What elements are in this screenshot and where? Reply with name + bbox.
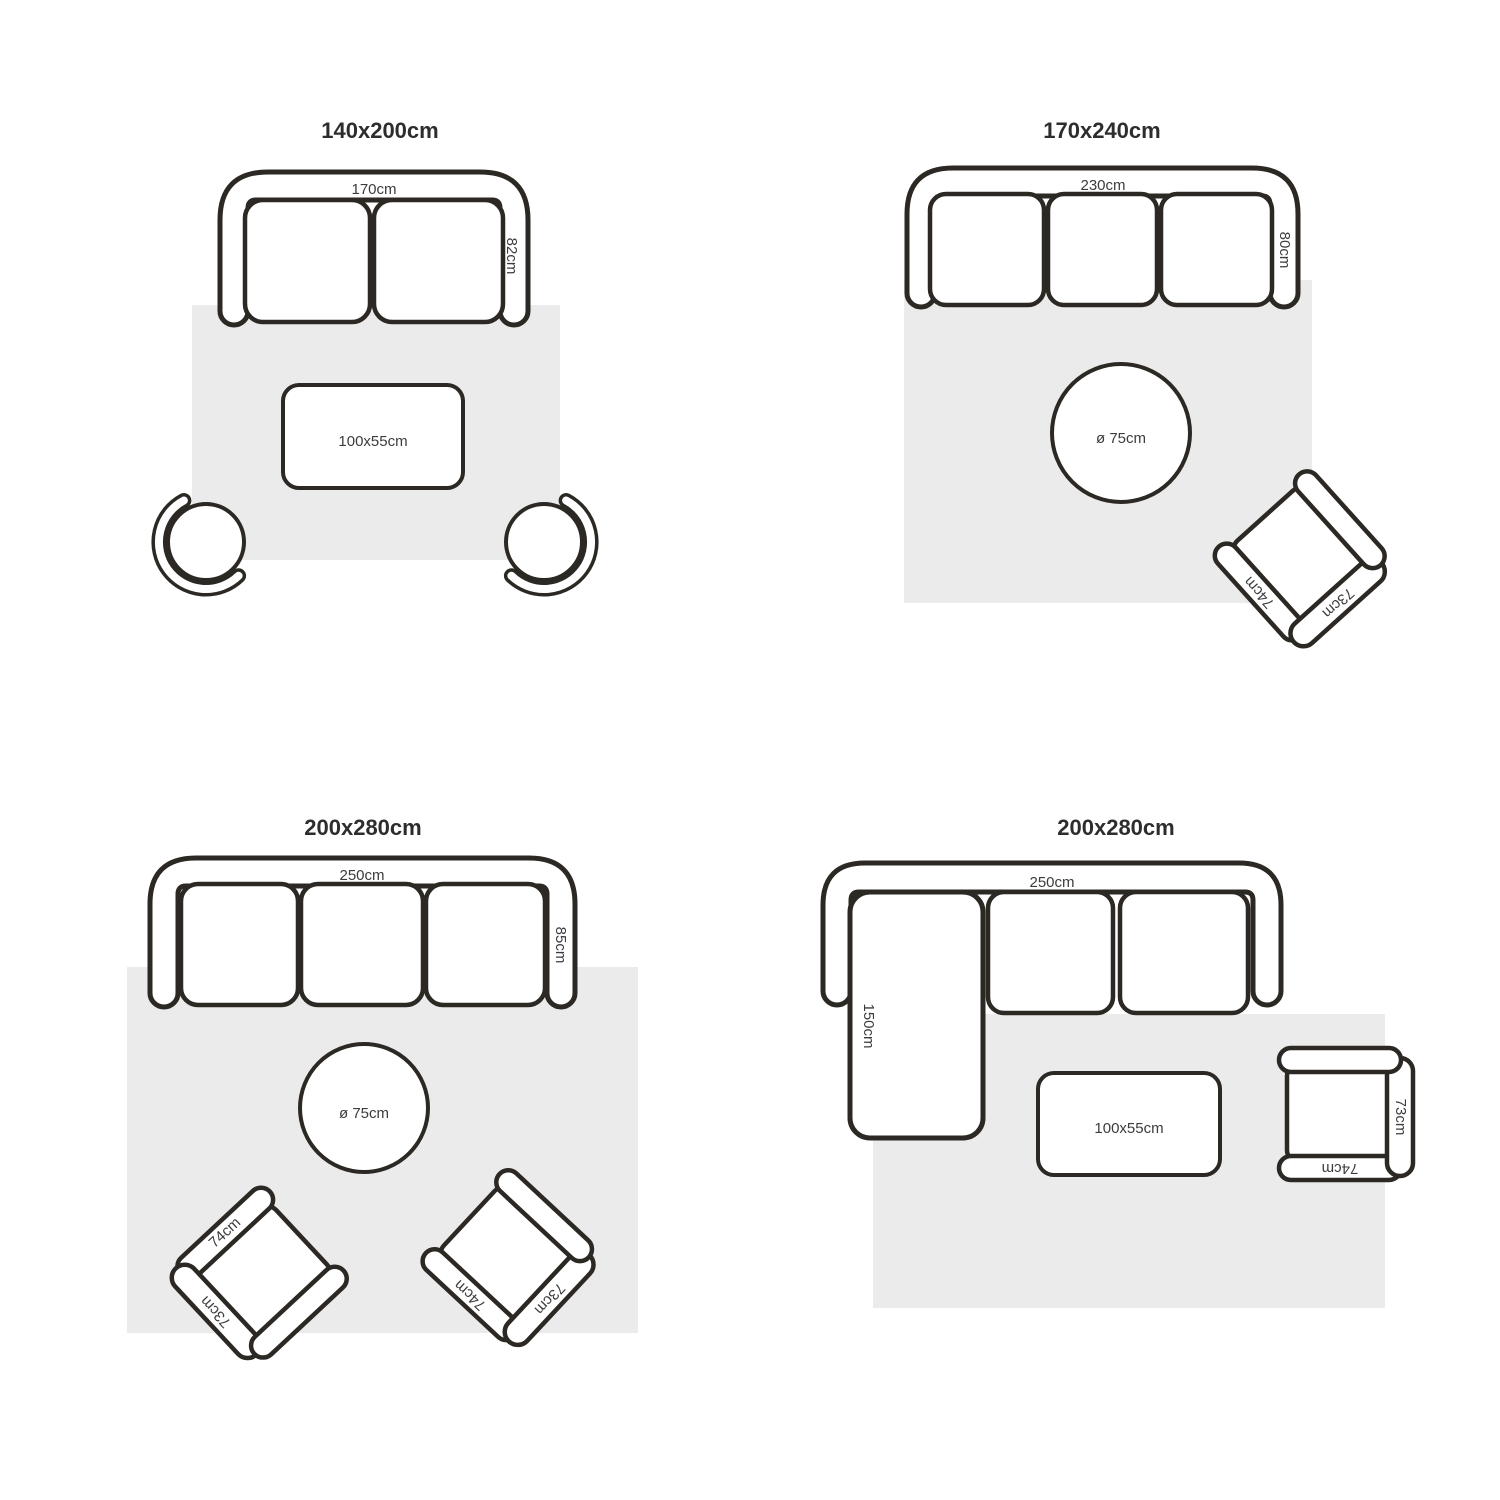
swivel-chair-seat bbox=[506, 504, 582, 580]
panel-title: 200x280cm bbox=[1057, 815, 1174, 840]
rug-size-guide-diagram: 73cm 74cm 140x200cm 170cm 82cm 100x55cm … bbox=[0, 0, 1500, 1500]
sofa-cushion bbox=[374, 200, 503, 322]
coffee-table-label: 100x55cm bbox=[338, 433, 407, 450]
round-table-label: ø 75cm bbox=[339, 1105, 389, 1122]
panel-170x240: 170x240cm 230cm 80cm ø 75cm bbox=[904, 118, 1398, 654]
swivel-chair-right bbox=[506, 501, 591, 590]
sofa-cushion bbox=[426, 884, 545, 1005]
sofa-depth-label: 80cm bbox=[1276, 232, 1293, 269]
armchair bbox=[1279, 1048, 1413, 1180]
sofa-width-label: 170cm bbox=[351, 181, 396, 198]
round-table-label: ø 75cm bbox=[1096, 430, 1146, 447]
sofa-depth-label: 85cm bbox=[552, 927, 569, 964]
swivel-chair-left bbox=[159, 501, 244, 590]
sofa-cushion bbox=[245, 200, 370, 322]
sofa-cushion bbox=[181, 884, 298, 1005]
sofa-cushion bbox=[301, 884, 423, 1005]
sofa-width-label: 250cm bbox=[1029, 874, 1074, 891]
swivel-chair-seat bbox=[168, 504, 244, 580]
chaise-length-label: 150cm bbox=[860, 1003, 877, 1048]
coffee-table-label: 100x55cm bbox=[1094, 1120, 1163, 1137]
panel-title: 200x280cm bbox=[304, 815, 421, 840]
panel-200x280-b: 200x280cm 250cm 150cm 100x55cm bbox=[823, 815, 1413, 1308]
sofa-cushion bbox=[1120, 892, 1248, 1013]
sofa-cushion bbox=[930, 194, 1044, 305]
sofa-width-label: 250cm bbox=[339, 867, 384, 884]
panel-140x200: 140x200cm 170cm 82cm 100x55cm bbox=[159, 118, 591, 589]
panel-200x280-a: 200x280cm 250cm 85cm ø 75cm bbox=[127, 815, 638, 1371]
sofa-cushion bbox=[988, 892, 1113, 1013]
sofa-width-label: 230cm bbox=[1080, 177, 1125, 194]
sofa-cushion bbox=[1048, 194, 1157, 305]
panel-title: 170x240cm bbox=[1043, 118, 1160, 143]
sofa-cushion bbox=[1161, 194, 1272, 305]
sofa-depth-label: 82cm bbox=[503, 238, 520, 275]
panel-title: 140x200cm bbox=[321, 118, 438, 143]
